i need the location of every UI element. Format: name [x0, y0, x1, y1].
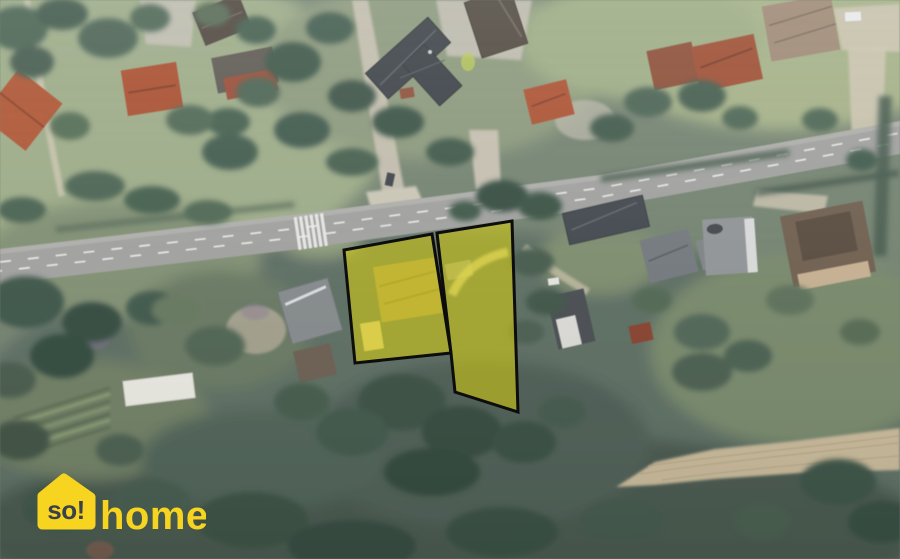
sohome-logo: so! home	[36, 472, 206, 536]
parcel-highlight-left	[344, 234, 451, 363]
sohome-logo-name-text: home	[100, 494, 206, 536]
listing-map-image: so! home	[0, 0, 900, 559]
sohome-logo-badge-text: so!	[47, 495, 85, 525]
parcel-highlight-right	[437, 221, 518, 412]
